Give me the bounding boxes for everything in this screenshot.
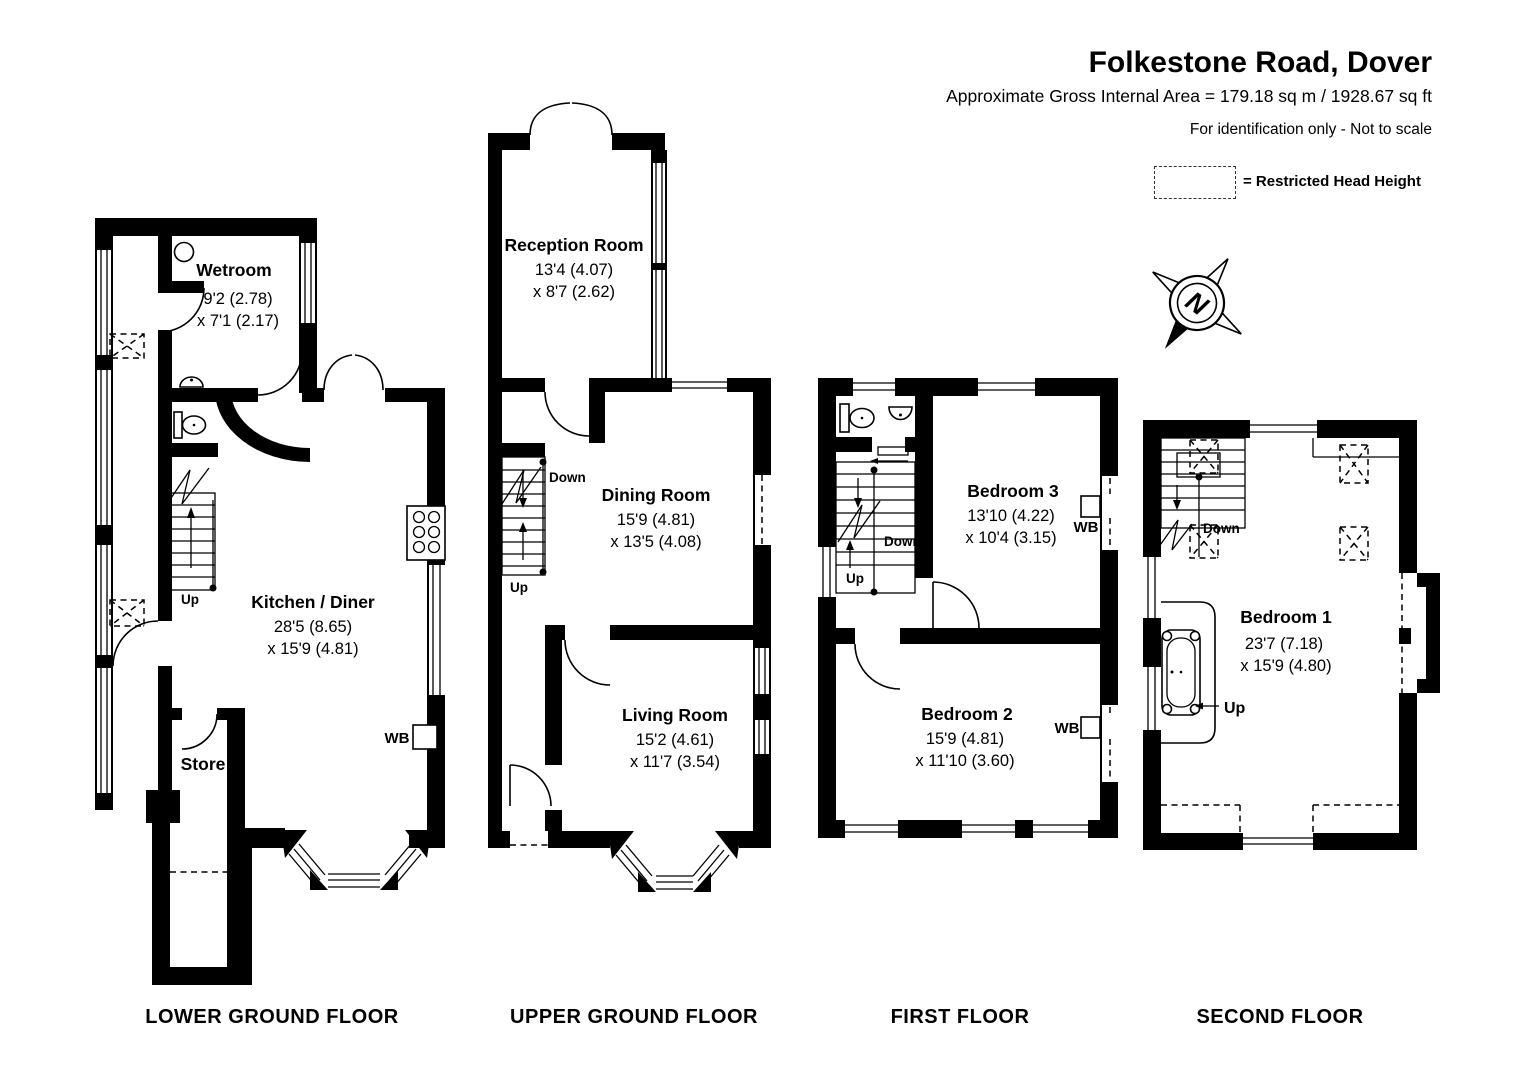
floorplan-page: Folkestone Road, Dover Approximate Gross… (0, 0, 1528, 1080)
room-dim: 13'4 (4.07) (535, 261, 613, 279)
stairs-down-label: Down (1203, 521, 1240, 536)
skylight-icon (110, 600, 144, 626)
floor-plan-upper-ground: Reception Room 13'4 (4.07) x 8'7 (2.62) … (488, 103, 771, 892)
floor-plan-second: Bedroom 1 23'7 (7.18) x 15'9 (4.80) Down… (1143, 420, 1440, 850)
room-dim: 15'9 (4.81) (926, 730, 1004, 748)
room-label-store: Store (181, 754, 226, 774)
room-dim: x 13'5 (4.08) (610, 533, 701, 551)
stairs-down-label: Down (884, 534, 921, 549)
stairs (500, 457, 547, 576)
skylight-icon (110, 334, 144, 358)
room-label-living: Living Room (622, 705, 728, 725)
stairs-up-label: Up (510, 580, 528, 595)
toilet-icon (840, 404, 874, 432)
room-dim: x 11'7 (3.54) (630, 753, 720, 771)
stairs-up-label: Up (1224, 700, 1246, 717)
shower-icon (175, 243, 194, 262)
room-dim: x 15'9 (4.81) (267, 640, 358, 658)
room-dim: x 10'4 (3.15) (965, 529, 1056, 547)
room-dim: 15'9 (4.81) (617, 511, 695, 529)
room-label-dining: Dining Room (602, 485, 711, 505)
compass-icon: N (1121, 228, 1273, 380)
room-label-bedroom2: Bedroom 2 (921, 704, 1013, 724)
fixtures (840, 404, 1100, 738)
skylight-icon (1190, 440, 1218, 473)
sink-icon (180, 377, 203, 387)
stairs (1158, 438, 1245, 557)
wash-basin-icon (1081, 717, 1100, 738)
room-dim: x 8'7 (2.62) (533, 283, 615, 301)
wash-basin-icon (413, 725, 437, 749)
room-dim: 9'2 (2.78) (203, 290, 272, 308)
stairs-up-label: Up (846, 571, 864, 586)
floor-plan-first: Bedroom 3 13'10 (4.22) x 10'4 (3.15) Bed… (818, 378, 1118, 838)
skylight-icon (1340, 445, 1368, 483)
stairs-up (165, 468, 217, 592)
skylight-icons (1190, 440, 1368, 560)
room-dim: 15'2 (4.61) (636, 731, 714, 749)
room-labels: Reception Room 13'4 (4.07) x 8'7 (2.62) … (504, 235, 728, 771)
floorplan-canvas: Wetroom 9'2 (2.78) x 7'1 (2.17) Kitchen … (0, 0, 1528, 1080)
wb-label: WB (1074, 519, 1099, 536)
room-label-reception: Reception Room (504, 235, 643, 255)
wb-label: WB (385, 730, 410, 747)
room-dim: 23'7 (7.18) (1245, 635, 1323, 653)
skylight-icon (1340, 527, 1368, 560)
room-dim: 28'5 (8.65) (274, 618, 352, 636)
stairs-up-label: Up (181, 592, 199, 607)
room-labels: Bedroom 1 23'7 (7.18) x 15'9 (4.80) Down… (1203, 521, 1332, 717)
room-labels: Bedroom 3 13'10 (4.22) x 10'4 (3.15) Bed… (846, 481, 1099, 770)
room-label-wetroom: Wetroom (196, 260, 272, 280)
room-dim: 13'10 (4.22) (967, 507, 1055, 525)
bay-window (281, 830, 431, 890)
bath-icon (1161, 602, 1215, 743)
sink-icon (889, 407, 912, 419)
room-dim: x 11'10 (3.60) (915, 752, 1014, 770)
room-dim: x 7'1 (2.17) (197, 312, 279, 330)
eaves-lines (1313, 438, 1399, 457)
room-label-bedroom3: Bedroom 3 (967, 481, 1059, 501)
doors (113, 288, 383, 749)
room-label-kitchen-diner: Kitchen / Diner (251, 592, 375, 612)
restricted-head-height-dashes (1161, 805, 1399, 833)
hob-icon (407, 506, 445, 560)
wash-basin-icon (1081, 496, 1100, 517)
room-label-bedroom1: Bedroom 1 (1240, 607, 1332, 627)
stairs-down-label: Down (549, 470, 586, 485)
wb-label: WB (1055, 720, 1080, 737)
toilet-icon (174, 412, 206, 438)
bay-window (608, 831, 741, 892)
skylight-icons (110, 334, 144, 626)
floor-plan-lower-ground: Wetroom 9'2 (2.78) x 7'1 (2.17) Kitchen … (95, 218, 445, 985)
room-dim: x 15'9 (4.80) (1240, 657, 1331, 675)
